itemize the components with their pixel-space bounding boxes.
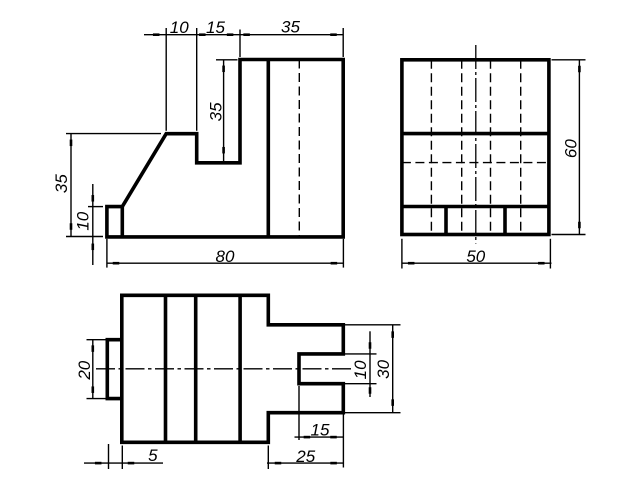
svg-text:35: 35 — [52, 174, 71, 193]
svg-text:10: 10 — [351, 360, 370, 379]
svg-text:80: 80 — [216, 247, 235, 266]
svg-text:15: 15 — [311, 420, 330, 439]
svg-text:10: 10 — [170, 18, 189, 37]
svg-text:35: 35 — [281, 18, 300, 37]
svg-text:10: 10 — [73, 211, 92, 230]
svg-text:15: 15 — [206, 18, 225, 37]
svg-text:60: 60 — [561, 139, 580, 158]
svg-text:25: 25 — [295, 447, 315, 466]
svg-text:30: 30 — [374, 359, 393, 378]
svg-text:50: 50 — [466, 247, 485, 266]
svg-text:5: 5 — [148, 446, 158, 465]
svg-text:20: 20 — [75, 360, 94, 380]
svg-text:35: 35 — [207, 102, 226, 121]
